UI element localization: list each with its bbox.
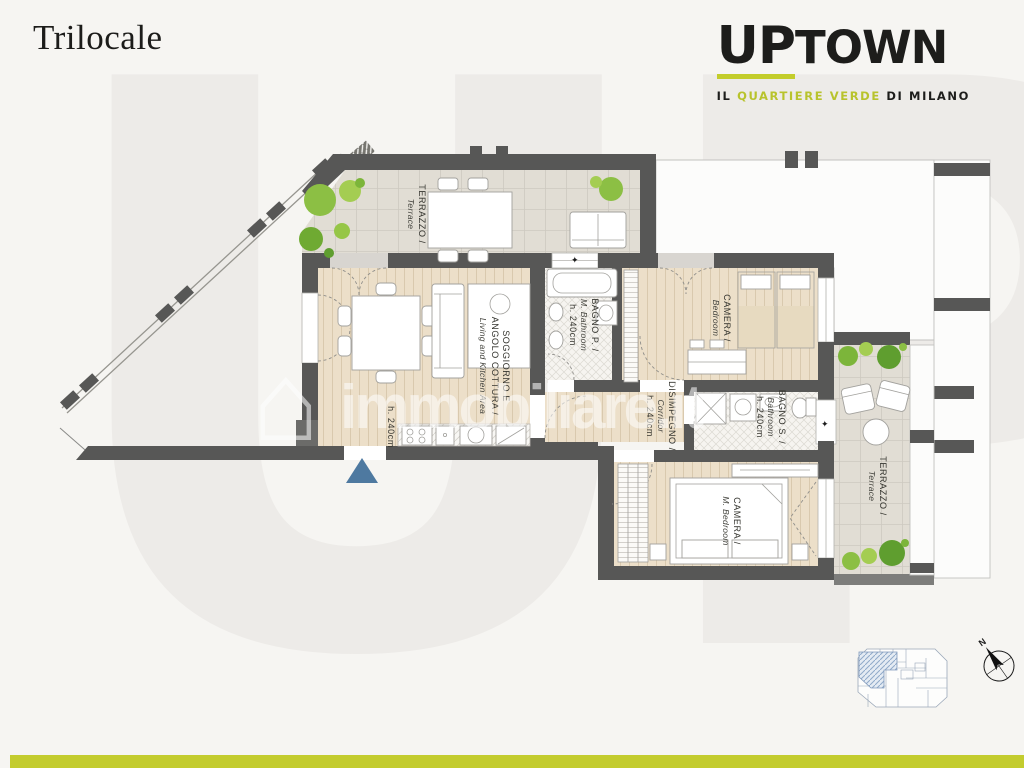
house-icon: ⌂: [252, 339, 320, 464]
tagline-highlight: QUARTIERE VERDE: [737, 89, 881, 103]
label-master-bedroom: CAMERA / M. Bedroom: [721, 496, 742, 545]
page-title: Trilocale: [33, 18, 163, 58]
bush-icon: [355, 178, 365, 188]
logo-up: UP: [717, 20, 795, 79]
bush-icon: [879, 540, 905, 566]
bush-icon: [842, 552, 860, 570]
label-bathroom-main: BAGNO P. / M. Bathroom h. 240cm: [568, 298, 600, 351]
room-label: h. 240cm: [568, 304, 578, 346]
label-bathroom-second: BAGNO S. / Bathroom h. 240cm: [755, 390, 787, 445]
bush-icon: [877, 345, 901, 369]
terrace-bench: [570, 212, 626, 248]
uptown-logo: UPTOWN IL QUARTIERE VERDE DI MILANO: [717, 20, 970, 103]
bush-icon: [334, 223, 350, 239]
tagline-prefix: IL: [717, 89, 732, 103]
bush-icon: [838, 346, 858, 366]
entrance-arrow-icon: [346, 458, 378, 483]
compass-north-label: N: [977, 636, 988, 648]
bush-icon: [590, 176, 602, 188]
page: UP: [0, 0, 1024, 768]
room-label: TERRAZZO /: [417, 184, 427, 244]
room-label: Terrace: [406, 199, 416, 230]
keyplan: [858, 649, 947, 707]
bush-icon: [899, 343, 907, 351]
master-bedroom-furniture: [618, 464, 818, 564]
compass-icon: N: [967, 630, 1020, 687]
floor-plan: ✦ ✦: [0, 0, 1024, 768]
bush-icon: [324, 248, 334, 258]
window-marker-icon: ✦: [571, 255, 579, 265]
logo-town: TOWN: [795, 25, 947, 70]
room-label: Bedroom: [711, 300, 721, 337]
watermark-text: immobiliare.it: [340, 373, 703, 442]
room-label: CAMERA /: [732, 497, 742, 545]
bush-icon: [299, 227, 323, 251]
logo-wordmark: UPTOWN: [717, 20, 970, 79]
bush-icon: [859, 342, 873, 356]
terrace-right-floor: [834, 345, 910, 575]
bush-icon: [861, 548, 877, 564]
room-label: h. 240cm: [755, 396, 765, 438]
room-label: BAGNO P. /: [590, 298, 600, 351]
window-marker-icon: ✦: [821, 419, 829, 429]
room-label: M. Bedroom: [721, 496, 731, 545]
bush-icon: [304, 184, 336, 216]
room-label: TERRAZZO /: [878, 456, 888, 516]
logo-tagline: IL QUARTIERE VERDE DI MILANO: [717, 89, 970, 103]
tagline-suffix: DI MILANO: [886, 89, 970, 103]
label-bedroom: CAMERA / Bedroom: [711, 294, 732, 342]
bottom-accent-bar: [10, 755, 1024, 768]
room-label: BAGNO S. /: [777, 390, 787, 445]
bush-icon: [901, 539, 909, 547]
bush-icon: [599, 177, 623, 201]
room-label: M. Bathroom: [579, 299, 589, 351]
room-label: Bathroom: [766, 397, 776, 436]
room-label: CAMERA /: [722, 294, 732, 342]
room-label: Terrace: [867, 471, 877, 502]
